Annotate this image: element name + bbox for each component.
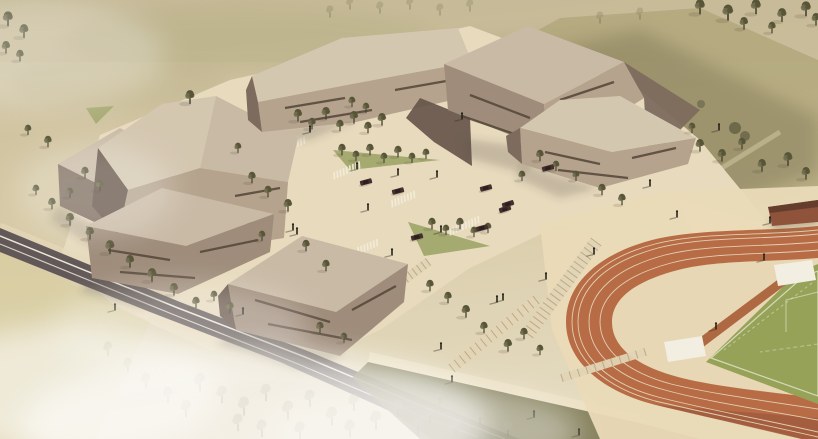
warm-tint: [0, 0, 818, 439]
fog-overlay: [0, 0, 818, 439]
aerial-campus-scene: [0, 0, 818, 439]
architectural-rendering: [0, 0, 818, 439]
